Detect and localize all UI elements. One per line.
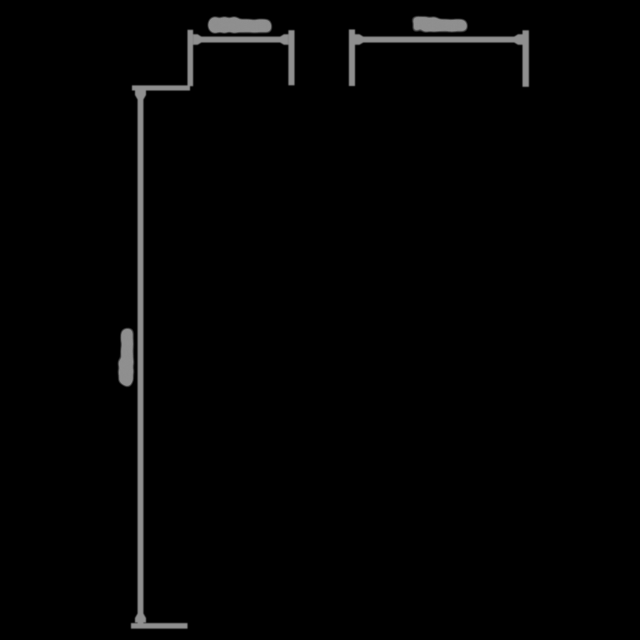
svg-text:455mm: 455mm xyxy=(119,330,136,385)
svg-text:600mm: 600mm xyxy=(210,15,270,35)
svg-text:750mm: 750mm xyxy=(413,17,466,34)
